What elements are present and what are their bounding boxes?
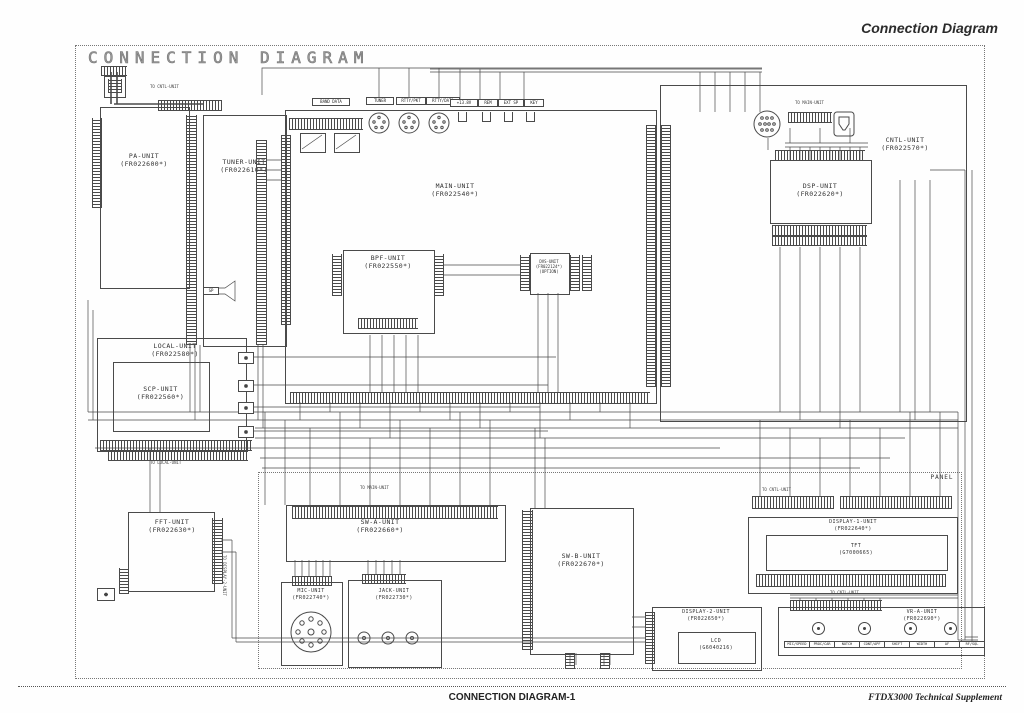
knob-icon — [812, 622, 825, 635]
wire-callout: TO CNTL-UNIT — [762, 487, 791, 492]
jack-label-key: KEY — [524, 99, 544, 107]
unit-name: DISPLAY-1-UNIT — [829, 519, 877, 525]
din-connector-icon — [398, 112, 420, 134]
connector-strip — [752, 496, 834, 509]
connector-strip — [434, 254, 444, 296]
speaker-label: SP — [203, 287, 219, 295]
connector-strip — [256, 140, 267, 345]
connector-strip — [790, 600, 882, 611]
unit-name: DISPLAY-2-UNIT — [682, 609, 730, 615]
unit-name: MAIN-UNIT — [436, 182, 475, 190]
unit-note: (OPTION) — [539, 269, 558, 274]
unit-part: (FR022620*) — [796, 190, 843, 198]
unit-name: LCD — [711, 638, 721, 644]
unit-label-bpf: BPF-UNIT (FR022550*) — [348, 254, 428, 271]
unit-label-tuner: TUNER-UNIT (FR022610*) — [203, 158, 285, 175]
wire-callout: TO MAIN-UNIT — [360, 485, 389, 490]
connector-strip — [332, 254, 342, 296]
connector-strip — [292, 506, 498, 519]
din-label-tuner: TUNER — [366, 97, 394, 105]
connector-strip — [281, 135, 291, 325]
connector-strip — [186, 115, 197, 345]
unit-name: VR-A-UNIT — [907, 609, 938, 615]
unit-part: (FR022600*) — [120, 160, 167, 168]
wire-callout: TO CNTL-UNIT — [150, 84, 179, 89]
unit-name: SCP-UNIT — [143, 385, 178, 393]
din-connector-icon — [368, 112, 390, 134]
mic-connector-icon — [289, 610, 333, 654]
vr-label-mic-speed: MIC/SPEED — [784, 641, 810, 648]
vr-label-width: WIDTH — [909, 641, 935, 648]
unit-name: BPF-UNIT — [371, 254, 406, 262]
connector-strip — [772, 236, 867, 246]
phone-jack-icons — [356, 630, 420, 646]
unit-part: (FR022650*) — [687, 616, 725, 622]
unit-part: (FR022690*) — [903, 616, 941, 622]
filter-symbol — [300, 133, 326, 153]
wire-callout: TO CNTL-UNIT — [830, 590, 859, 595]
unit-label-lcd: LCD (G6040216) — [680, 638, 752, 651]
unit-part: (FR022630*) — [148, 526, 195, 534]
connector-strip — [92, 118, 102, 208]
unit-name: FFT-UNIT — [155, 518, 190, 526]
connector-strip — [756, 574, 946, 587]
vr-label-notch: NOTCH — [834, 641, 860, 648]
unit-label-jack: JACK-UNIT (FR022730*) — [350, 588, 438, 601]
unit-label-cntl: CNTL-UNIT (FR022570*) — [860, 136, 950, 153]
unit-part: (FR022670*) — [557, 560, 604, 568]
connector-strip — [358, 318, 418, 329]
vr-label-shift: SHIFT — [884, 641, 910, 648]
unit-name: DSP-UNIT — [803, 182, 838, 190]
connector-strip — [645, 612, 655, 664]
unit-label-tft: TFT (G7000665) — [786, 543, 926, 556]
din-connector-large-icon — [753, 110, 781, 138]
unit-label-display1: DISPLAY-1-UNIT (FR022640*) — [798, 519, 908, 532]
unit-label-swa: SW-A-UNIT (FR022660*) — [330, 518, 430, 535]
unit-part: (FR022740*) — [292, 595, 330, 601]
unit-part: (G6040216) — [699, 645, 733, 651]
unit-name: JACK-UNIT — [379, 588, 410, 594]
unit-label-fft: FFT-UNIT (FR022630*) — [133, 518, 211, 535]
jack-glyph — [526, 112, 535, 122]
unit-label-scp: SCP-UNIT (FR022560*) — [118, 385, 203, 402]
band-data-label: BAND DATA — [312, 98, 350, 106]
unit-part: (FR022550*) — [364, 262, 411, 270]
connector-strip — [775, 150, 865, 161]
connector-strip — [646, 125, 656, 387]
unit-label-main: MAIN-UNIT (FR022540*) — [395, 182, 515, 199]
connector-strip — [522, 510, 533, 650]
vr-label-cont-apf: CONT/APF — [859, 641, 885, 648]
coax-connector — [238, 380, 254, 392]
connector-strip — [289, 118, 363, 130]
unit-label-local: LOCAL-UNIT (FR022580*) — [135, 342, 215, 359]
din-label-rtty-pkt: RTTY/PKT — [396, 97, 426, 105]
unit-box-tuner — [203, 115, 287, 347]
connector-strip — [362, 574, 406, 584]
unit-label-mic: MIC-UNIT (FR022740*) — [283, 588, 339, 601]
usb-connector-icon — [833, 111, 855, 137]
connector-strip — [600, 653, 610, 669]
unit-name: SW-B-UNIT — [562, 552, 601, 560]
connector-strip — [565, 653, 575, 669]
connector-strip — [119, 568, 129, 594]
vr-label-rf-sql: RF/SQL — [959, 641, 985, 648]
din-connector-icon — [428, 112, 450, 134]
connector-strip — [661, 125, 671, 387]
schematic-page: Connection Diagram CONNECTION DIAGRAM CO… — [0, 0, 1024, 713]
connector-strip — [108, 79, 122, 93]
jack-glyph — [482, 112, 491, 122]
unit-part: (FR022640*) — [834, 526, 872, 532]
unit-name: SW-A-UNIT — [361, 518, 400, 526]
connector-strip — [520, 255, 530, 291]
connector-strip — [158, 100, 222, 111]
coax-connector — [238, 402, 254, 414]
connector-strip — [570, 255, 580, 291]
wire-callout: TO DISPLAY-2-UNIT — [222, 555, 227, 596]
coax-connector — [97, 588, 115, 601]
unit-part: (FR022730*) — [375, 595, 413, 601]
coax-connector — [238, 352, 254, 364]
unit-part: (G7000665) — [839, 550, 873, 556]
filter-symbol — [334, 133, 360, 153]
knob-icon — [858, 622, 871, 635]
wire-callout: TO MAIN-UNIT — [795, 100, 824, 105]
jack-glyph — [458, 112, 467, 122]
unit-label-display2: DISPLAY-2-UNIT (FR022650*) — [656, 609, 756, 622]
connector-strip — [582, 255, 592, 291]
unit-label-dvs: DVS-UNIT (FR022124*) (OPTION) — [528, 259, 570, 275]
vr-label-proc-car: PROC/CAR — [809, 641, 835, 648]
wire-callout: TO LOCAL-UNIT — [150, 460, 181, 465]
knob-icon — [904, 622, 917, 635]
jack-label-rem: REM — [478, 99, 498, 107]
unit-box-swb — [530, 508, 634, 655]
jack-glyph — [504, 112, 513, 122]
unit-part: (FR022540*) — [431, 190, 478, 198]
unit-part: (FR022660*) — [356, 526, 403, 534]
knob-icon — [944, 622, 957, 635]
jack-label-ext-sp: EXT SP — [498, 99, 524, 107]
connector-strip — [772, 225, 867, 236]
connector-strip — [100, 440, 252, 451]
connector-strip — [788, 112, 832, 123]
unit-name: PA-UNIT — [129, 152, 159, 160]
unit-label-dsp: DSP-UNIT (FR022620*) — [775, 182, 865, 199]
unit-part: (FR022570*) — [881, 144, 928, 152]
jack-label-13v: +13.8V — [450, 99, 478, 107]
unit-name: CNTL-UNIT — [886, 136, 925, 144]
unit-label-pa: PA-UNIT (FR022600*) — [100, 152, 188, 169]
connector-strip — [840, 496, 952, 509]
unit-part: (FR022580*) — [151, 350, 198, 358]
unit-label-vra: VR-A-UNIT (FR022690*) — [872, 609, 972, 622]
coax-connector — [238, 426, 254, 438]
vr-label-af: AF — [934, 641, 960, 648]
connector-strip — [290, 392, 650, 404]
connector-strip — [292, 576, 332, 586]
connector-strip — [101, 66, 127, 76]
unit-name: TFT — [851, 543, 861, 549]
unit-name: MIC-UNIT — [297, 588, 324, 594]
unit-label-swb: SW-B-UNIT (FR022670*) — [535, 552, 627, 569]
unit-box-pa — [100, 107, 190, 289]
unit-part: (FR022560*) — [137, 393, 184, 401]
